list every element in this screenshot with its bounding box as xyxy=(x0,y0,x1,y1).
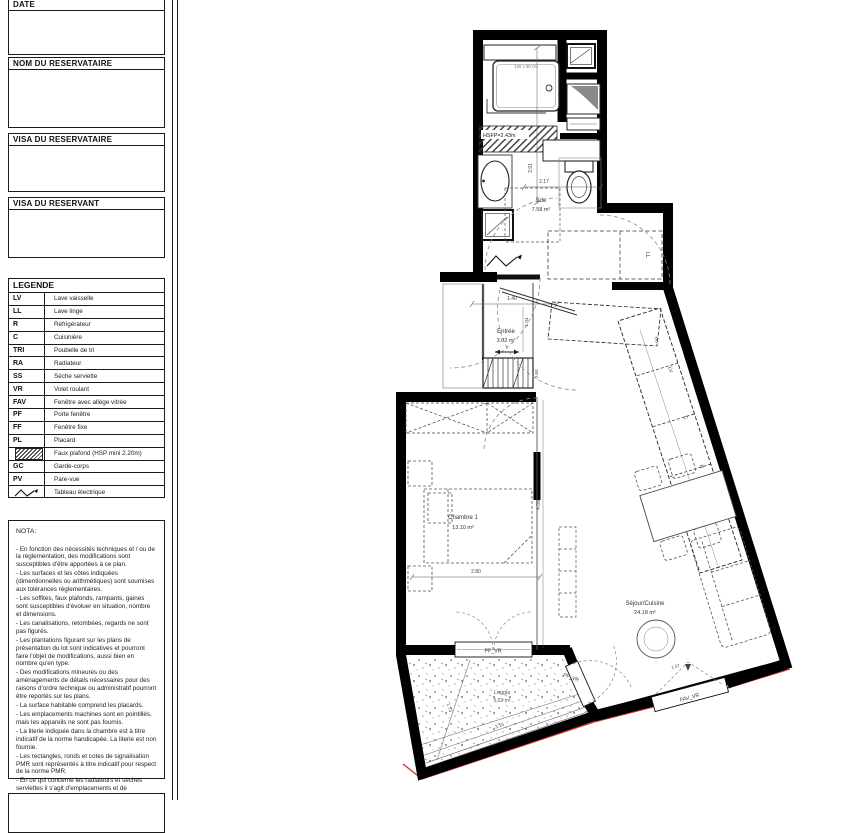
floorplan-drawing: 120 x 90 cm HSFP=2.43m 3 xyxy=(0,0,854,800)
room-area-sejour: 24.18 m² xyxy=(634,610,656,616)
appliance-label-ll: LL xyxy=(644,252,650,258)
toilet xyxy=(559,158,601,208)
room-area-entree: 3.02 m² xyxy=(497,338,516,344)
shower: 120 x 90 cm xyxy=(484,45,559,113)
entree-arrow xyxy=(495,350,519,355)
dim-0-60: 0.60 xyxy=(534,369,540,379)
chambre-dimensions xyxy=(410,400,543,648)
room-label-loggia: Loggia xyxy=(494,690,511,696)
chambre-placard xyxy=(406,403,533,433)
armchair xyxy=(637,620,675,658)
mirror xyxy=(482,210,513,240)
window-fav: FAV_VR xyxy=(651,662,728,712)
dim-2-17: 2.17 xyxy=(539,179,549,185)
room-area-loggia: 5.02 m² xyxy=(494,698,511,704)
dim-2-80: 2.80 xyxy=(471,569,481,575)
electrical-panel-icon xyxy=(487,255,522,267)
laundry-nook: LL xyxy=(548,215,670,285)
dim-4-09: 4.09 xyxy=(536,500,542,510)
appliance-label-tri: TRI xyxy=(653,336,660,344)
room-label-sejour: Séjour/Cuisine xyxy=(625,601,665,607)
appliance-label-lv: LV xyxy=(666,366,674,374)
entree-placard xyxy=(483,358,533,388)
room-label-entree: Entrée xyxy=(497,329,515,335)
dim-1-40: 1.40 xyxy=(507,296,517,302)
room-area-chambre: 13.10 m² xyxy=(452,525,474,531)
radiator xyxy=(559,527,576,617)
hsfp-label: HSFP=2.43m xyxy=(483,133,516,139)
dim-3-91: 3.91 xyxy=(528,163,534,173)
shower-size-label: 120 x 90 cm xyxy=(514,64,538,69)
room-label-chambre: Chambre 1 xyxy=(448,515,478,521)
entry-landing xyxy=(443,284,483,388)
room-area-sde: 7.58 m² xyxy=(532,207,551,213)
dim-1-57: 1.57 xyxy=(671,663,681,670)
dim-1-04: 1.04 xyxy=(524,317,530,327)
floorplan-sheet: { "sidebar": { "boxes": [ {"label": "DAT… xyxy=(0,0,854,800)
nook-door-swing xyxy=(600,215,670,285)
washbasin xyxy=(478,155,512,208)
window-pf1: PF_VR xyxy=(455,612,532,657)
appliance-label-c: C xyxy=(682,415,689,421)
appliance-label-r: R xyxy=(698,464,705,470)
